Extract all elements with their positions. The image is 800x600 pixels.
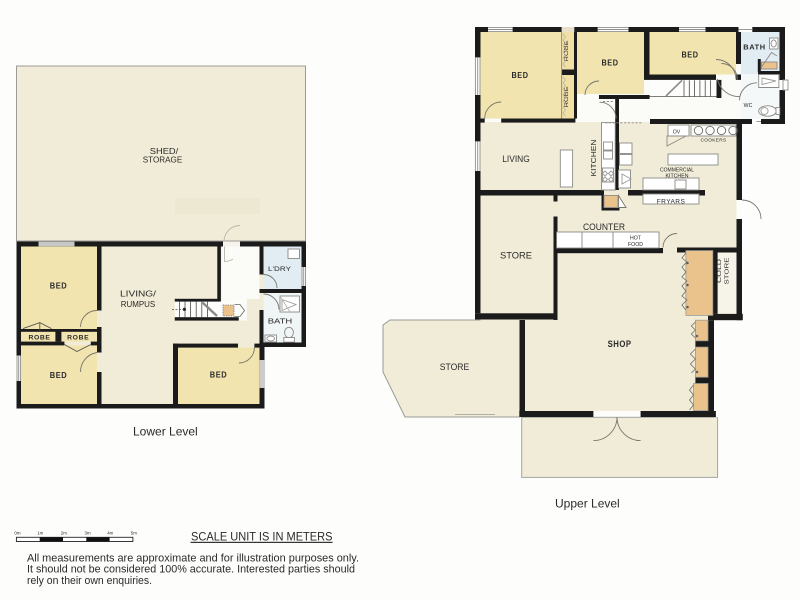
svg-text:HOT: HOT	[630, 236, 642, 242]
svg-text:Lower Level: Lower Level	[133, 425, 198, 439]
svg-text:STORE: STORE	[725, 257, 731, 284]
svg-text:4m: 4m	[107, 531, 113, 536]
svg-text:BATH: BATH	[268, 317, 293, 326]
svg-text:Upper Level: Upper Level	[555, 497, 620, 511]
svg-text:2m: 2m	[61, 531, 67, 536]
svg-text:BED: BED	[210, 371, 228, 380]
svg-text:BATH: BATH	[743, 43, 766, 52]
svg-text:BED: BED	[50, 282, 68, 291]
svg-text:STORE: STORE	[440, 362, 470, 373]
svg-text:OV: OV	[673, 130, 681, 136]
svg-text:WC: WC	[744, 103, 753, 109]
svg-text:BED: BED	[512, 71, 529, 80]
svg-text:KITCHEN: KITCHEN	[591, 140, 598, 177]
svg-text:BED: BED	[50, 371, 68, 380]
svg-text:COOKERS: COOKERS	[700, 138, 726, 144]
svg-text:0m: 0m	[14, 531, 20, 536]
svg-text:ROBE: ROBE	[67, 334, 89, 341]
svg-text:5m: 5m	[131, 531, 137, 536]
svg-text:FOOD: FOOD	[628, 242, 643, 248]
svg-text:rely on their own enquiries.: rely on their own enquiries.	[27, 575, 152, 587]
svg-text:All measurements are approxima: All measurements are approximate and for…	[27, 553, 359, 565]
svg-text:ROBE: ROBE	[564, 40, 570, 62]
svg-text:It should not be considered 10: It should not be considered 100% accurat…	[27, 564, 355, 576]
svg-text:L'DRY: L'DRY	[268, 266, 292, 273]
svg-text:STORE: STORE	[500, 251, 532, 262]
svg-text:SCALE UNIT IS IN METERS: SCALE UNIT IS IN METERS	[191, 530, 333, 544]
svg-text:1m: 1m	[37, 531, 43, 536]
svg-text:LIVING: LIVING	[502, 154, 530, 164]
svg-text:ROBE: ROBE	[28, 334, 50, 341]
svg-text:COLD: COLD	[717, 259, 723, 283]
svg-text:BED: BED	[682, 51, 699, 60]
svg-text:RUMPUS: RUMPUS	[121, 299, 156, 309]
svg-text:COUNTER: COUNTER	[583, 222, 625, 232]
svg-text:FRYARS: FRYARS	[657, 199, 686, 206]
svg-text:3m: 3m	[85, 531, 91, 536]
svg-text:KITCHEN: KITCHEN	[666, 173, 689, 179]
svg-text:STORAGE: STORAGE	[143, 156, 183, 165]
svg-text:SHOP: SHOP	[608, 339, 632, 349]
svg-text:BED: BED	[602, 59, 619, 68]
svg-text:LIVING/: LIVING/	[120, 289, 157, 299]
